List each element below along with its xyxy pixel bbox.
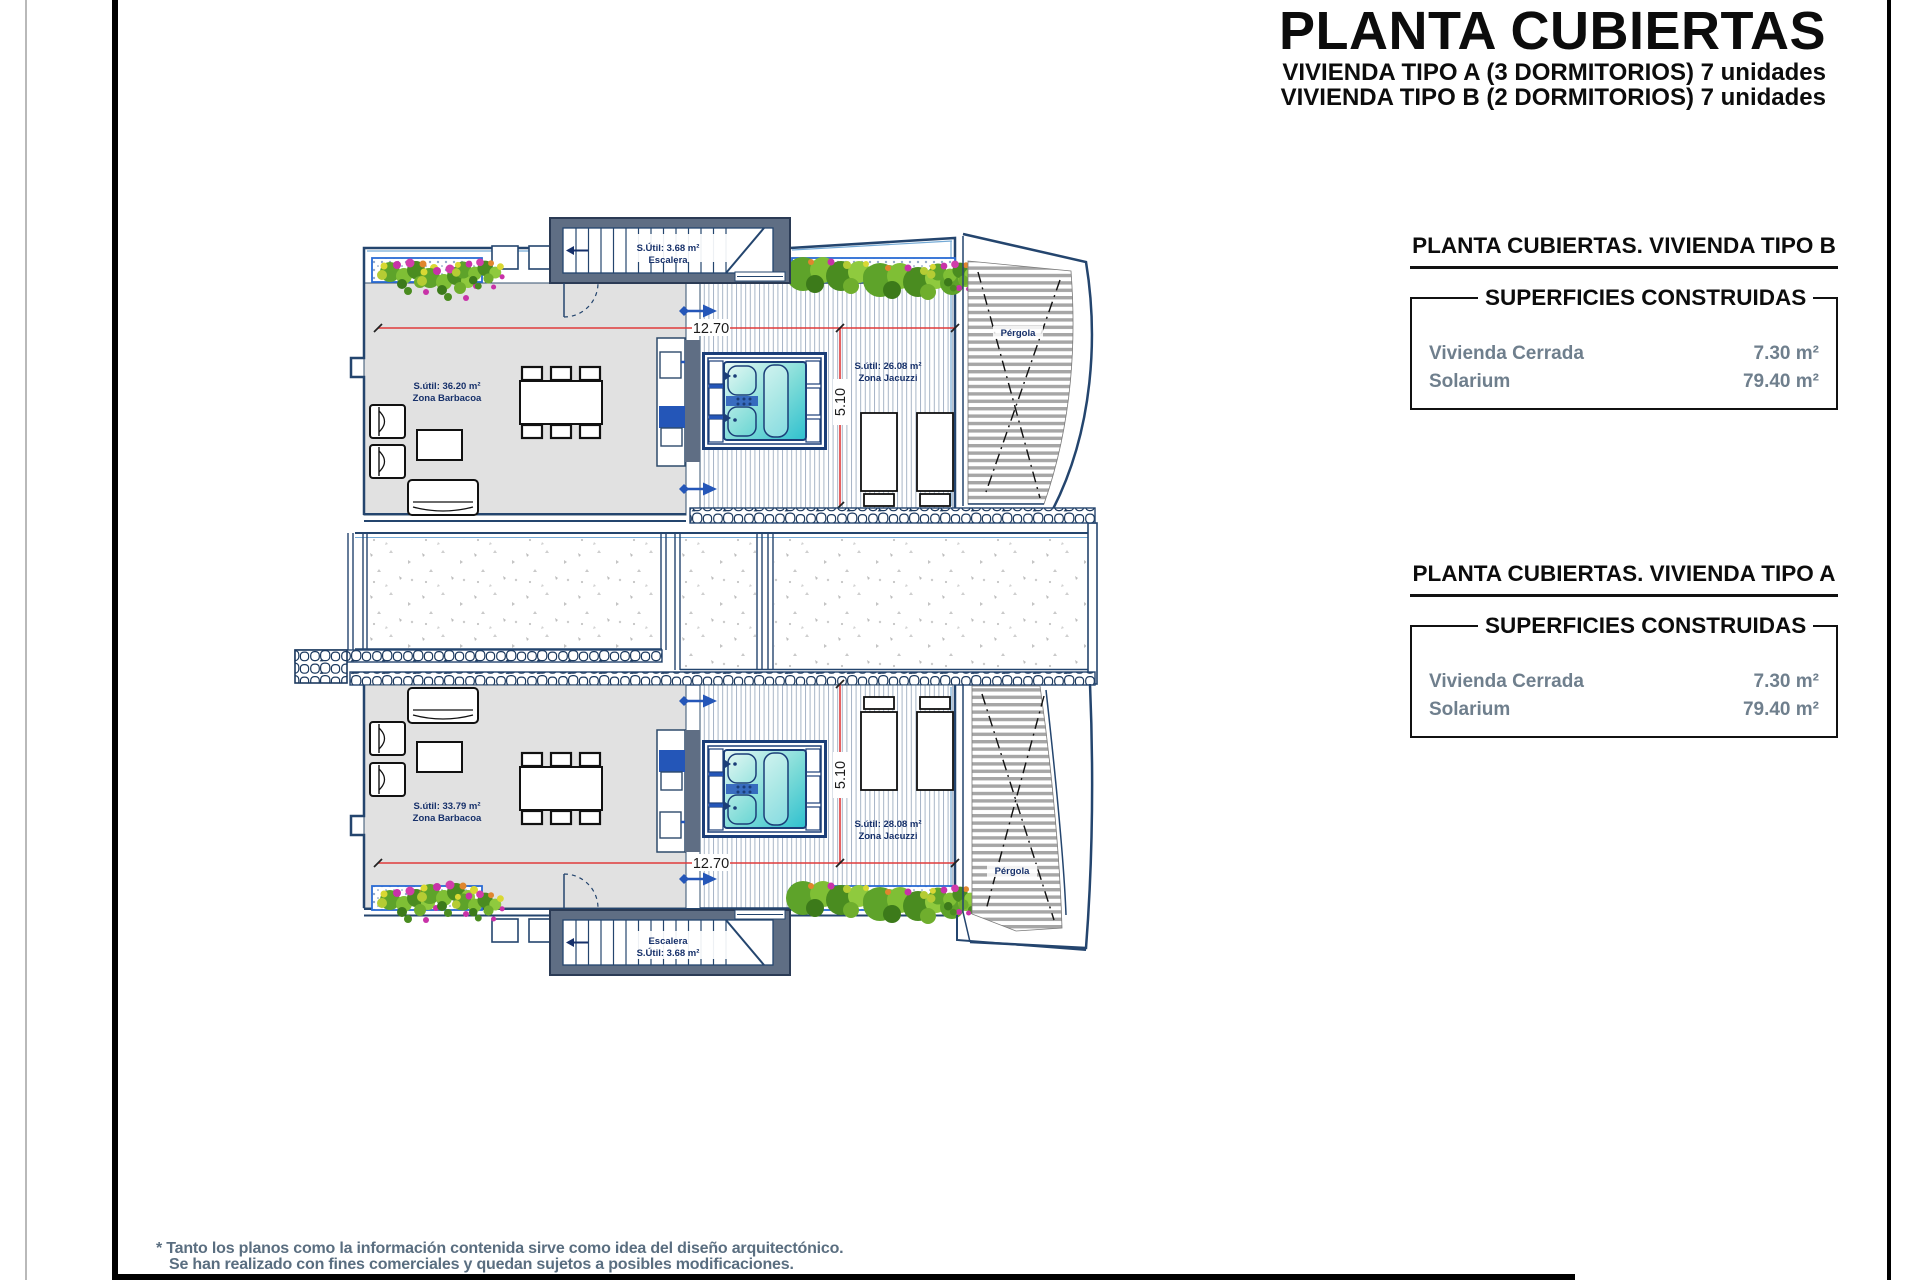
upper-barbecue-name-label: Zona Barbacoa [413, 393, 482, 404]
lower-width-dimension: 12.70 [693, 856, 729, 872]
lower-roof-vent [492, 919, 518, 942]
surface-label: Vivienda Cerrada [1429, 343, 1584, 365]
lower-unit-wall-left [351, 685, 364, 908]
surface-row: Vivienda Cerrada 7.30 m² [1429, 343, 1819, 365]
upper-divider-wall [685, 340, 700, 462]
summary-box-tipo-a: PLANTA CUBIERTAS. VIVIENDA TIPO A SUPERF… [1410, 561, 1838, 738]
upper-depth-dimension: 5.10 [833, 388, 849, 416]
upper-jacuzzi-area-label: S.útil: 26.08 m² [854, 361, 921, 372]
page-title: PLANTA CUBIERTAS [1279, 2, 1826, 60]
sheet-border-bottom [112, 1274, 1575, 1280]
lower-depth-dimension: 5.10 [833, 761, 849, 789]
lower-outdoor-kitchen [657, 730, 688, 852]
surface-label: Vivienda Cerrada [1429, 671, 1584, 693]
walkway-end-wall [1088, 523, 1097, 684]
summary-heading: PLANTA CUBIERTAS. VIVIENDA TIPO A [1410, 561, 1838, 597]
upper-stair-name-label: Escalera [648, 255, 688, 266]
summary-box-tipo-b: PLANTA CUBIERTAS. VIVIENDA TIPO B SUPERF… [1410, 233, 1838, 410]
surface-row: Solarium 79.40 m² [1429, 699, 1819, 721]
surfaces-table: SUPERFICIES CONSTRUIDAS Vivienda Cerrada… [1410, 297, 1838, 410]
lower-divider-wall [685, 730, 700, 852]
lower-side-table [417, 742, 462, 772]
surface-row: Vivienda Cerrada 7.30 m² [1429, 671, 1819, 693]
lower-jacuzzi-name-label: Zona Jacuzzi [858, 831, 917, 842]
upper-sofa [408, 480, 478, 515]
surface-value: 7.30 m² [1754, 343, 1819, 365]
subtitle-tipo-a: VIVIENDA TIPO A (3 DORMITORIOS) 7 unidad… [1279, 60, 1826, 85]
upper-outdoor-kitchen [657, 338, 688, 466]
upper-side-table [417, 430, 462, 460]
upper-pergola: Pérgola [963, 234, 1092, 511]
disclaimer-line-1: * Tanto los planos como la información c… [156, 1241, 843, 1257]
upper-width-dimension: 12.70 [693, 321, 729, 337]
surface-label: Solarium [1429, 371, 1510, 393]
lower-unit: Escalera S.Útil: 3.68 m² S.útil: 33.79 m… [351, 680, 1092, 975]
lower-sofa [408, 688, 478, 723]
lower-armchair [370, 763, 405, 796]
lower-barbecue-area-label: S.útil: 33.79 m² [413, 801, 480, 812]
lower-dining-set [520, 753, 602, 824]
title-block: PLANTA CUBIERTAS VIVIENDA TIPO A (3 DORM… [1279, 2, 1826, 110]
upper-dining-set [520, 367, 602, 438]
upper-unit: S.Útil: 3.68 m² Escalera S.útil: 3 [351, 218, 1092, 521]
upper-pergola-label: Pérgola [1001, 328, 1037, 339]
lower-armchair [370, 722, 405, 755]
lower-barbecue-name-label: Zona Barbacoa [413, 813, 482, 824]
lower-stair-name-label: Escalera [648, 936, 688, 947]
lower-jacuzzi [702, 740, 827, 838]
upper-jacuzzi-name-label: Zona Jacuzzi [858, 373, 917, 384]
lower-pergola: Pérgola [957, 684, 1092, 950]
lower-pebble-band [350, 672, 1095, 685]
lower-stair-area-label: S.Útil: 3.68 m² [637, 947, 700, 959]
pebble-outcrop [295, 650, 347, 683]
upper-barbecue-area-label: S.útil: 36.20 m² [413, 381, 480, 392]
disclaimer-line-2: Se han realizado con fines comerciales y… [169, 1257, 843, 1273]
upper-armchair [370, 445, 405, 478]
lower-pergola-label: Pérgola [995, 866, 1031, 877]
upper-roof-vent [492, 246, 518, 269]
upper-armchair [370, 405, 405, 438]
walkway-pebble-band [295, 650, 662, 662]
sheet-border-right [1887, 0, 1891, 1280]
surface-row: Solarium 79.40 m² [1429, 371, 1819, 393]
upper-stair-area-label: S.Útil: 3.68 m² [637, 242, 700, 254]
upper-roof-vent [529, 246, 550, 269]
sheet-border-left [112, 0, 118, 1280]
surfaces-table-title: SUPERFICIES CONSTRUIDAS [1478, 613, 1813, 639]
upper-pebble-band [690, 508, 1095, 523]
surfaces-table: SUPERFICIES CONSTRUIDAS Vivienda Cerrada… [1410, 625, 1838, 738]
summary-heading: PLANTA CUBIERTAS. VIVIENDA TIPO B [1410, 233, 1838, 269]
lower-jacuzzi-area-label: S.útil: 28.08 m² [854, 819, 921, 830]
surface-value: 7.30 m² [1754, 671, 1819, 693]
surface-label: Solarium [1429, 699, 1510, 721]
sheet-margin-line [25, 0, 27, 1280]
surface-value: 79.40 m² [1743, 371, 1819, 393]
surfaces-table-title: SUPERFICIES CONSTRUIDAS [1478, 285, 1813, 311]
surface-value: 79.40 m² [1743, 699, 1819, 721]
upper-jacuzzi [702, 352, 827, 450]
subtitle-tipo-b: VIVIENDA TIPO B (2 DORMITORIOS) 7 unidad… [1279, 85, 1826, 110]
lower-roof-vent [529, 919, 550, 942]
disclaimer-note: * Tanto los planos como la información c… [156, 1241, 843, 1273]
